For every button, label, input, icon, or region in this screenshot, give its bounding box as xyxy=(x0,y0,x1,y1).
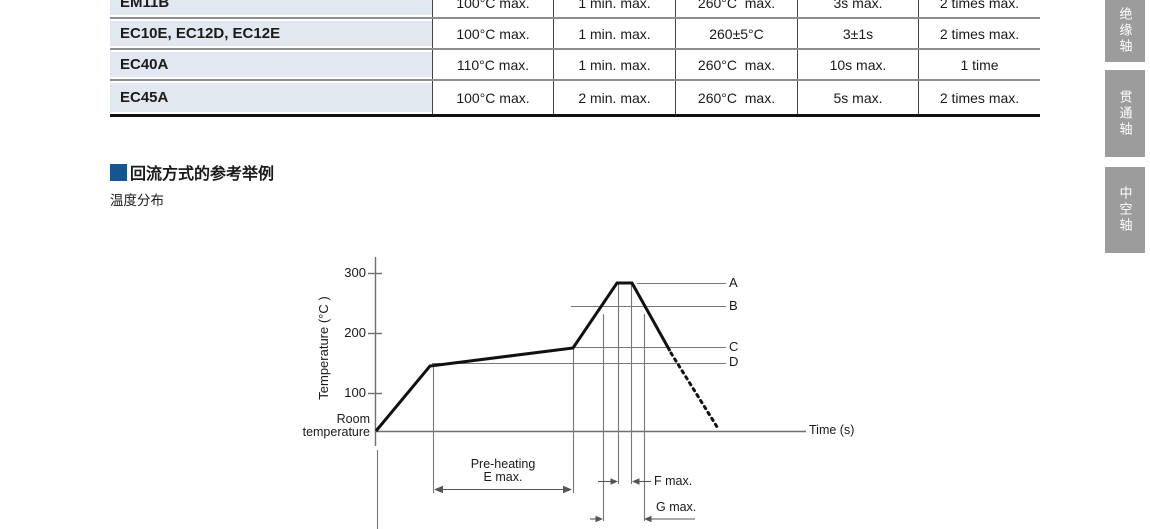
value-cell: 1 min. max. xyxy=(553,50,675,79)
reference-lines xyxy=(378,284,727,529)
value-cell: 110°C max. xyxy=(432,50,553,79)
table-row: EM11B 100°C max. 1 min. max. 260°C max. … xyxy=(110,0,1040,19)
value-cell: 260°C max. xyxy=(675,81,797,114)
value-cell: 2 min. max. xyxy=(553,81,675,114)
value-cell: 2 times max. xyxy=(918,0,1040,17)
value-cell: 5s max. xyxy=(797,81,918,114)
origin-label-temperature: temperature xyxy=(270,426,370,440)
table-row: EC40A 110°C max. 1 min. max. 260°C max. … xyxy=(110,50,1040,81)
side-tab-hollow-shaft: 中空轴 xyxy=(1105,167,1145,253)
value-cell: 260°C max. xyxy=(675,50,797,79)
profile-curve xyxy=(376,283,719,431)
table-row: EC10E, EC12D, EC12E 100°C max. 1 min. ma… xyxy=(110,19,1040,50)
section-subtitle: 温度分布 xyxy=(110,189,164,209)
y-tick-200: 200 xyxy=(336,326,366,340)
blue-square-icon xyxy=(110,164,127,181)
value-cell: 100°C max. xyxy=(432,81,553,114)
y-tick-300: 300 xyxy=(336,266,366,280)
value-cell: 1 time xyxy=(918,50,1040,79)
value-cell: 100°C max. xyxy=(432,19,553,48)
value-cell: 1 min. max. xyxy=(553,0,675,17)
datasheet-page: EM11B 100°C max. 1 min. max. 260°C max. … xyxy=(0,0,1150,529)
value-cell: 2 times max. xyxy=(918,81,1040,114)
section-title: 回流方式的参考举例 xyxy=(130,160,274,184)
model-cell: EC45A xyxy=(110,81,432,114)
side-tab-through-shaft: 贯通轴 xyxy=(1105,70,1145,157)
value-cell: 260°C max. xyxy=(675,0,797,17)
model-cell: EM11B xyxy=(110,0,432,17)
soldering-conditions-table: EM11B 100°C max. 1 min. max. 260°C max. … xyxy=(110,0,1040,117)
f-max-label: F max. xyxy=(654,475,692,489)
value-cell: 260±5°C xyxy=(675,19,797,48)
value-cell: 3s max. xyxy=(797,0,918,17)
side-tab-insulated-shaft: 绝缘轴 xyxy=(1105,0,1145,62)
value-cell: 1 min. max. xyxy=(553,19,675,48)
ref-label-c: C xyxy=(729,340,738,354)
model-cell: EC10E, EC12D, EC12E xyxy=(110,19,432,48)
ref-label-a: A xyxy=(729,276,738,290)
value-cell: 3±1s xyxy=(797,19,918,48)
table-row: EC45A 100°C max. 2 min. max. 260°C max. … xyxy=(110,81,1040,114)
e-max-label: E max. xyxy=(433,471,573,485)
value-cell: 2 times max. xyxy=(918,19,1040,48)
value-cell: 100°C max. xyxy=(432,0,553,17)
g-max-label: G max. xyxy=(656,501,696,515)
ref-label-d: D xyxy=(729,355,738,369)
y-tick-100: 100 xyxy=(336,386,366,400)
section-heading: 回流方式的参考举例 xyxy=(110,160,274,184)
model-cell: EC40A xyxy=(110,50,432,79)
value-cell: 10s max. xyxy=(797,50,918,79)
ref-label-b: B xyxy=(729,299,738,313)
chart-axes xyxy=(368,257,806,446)
x-axis-title: Time (s) xyxy=(809,424,854,438)
